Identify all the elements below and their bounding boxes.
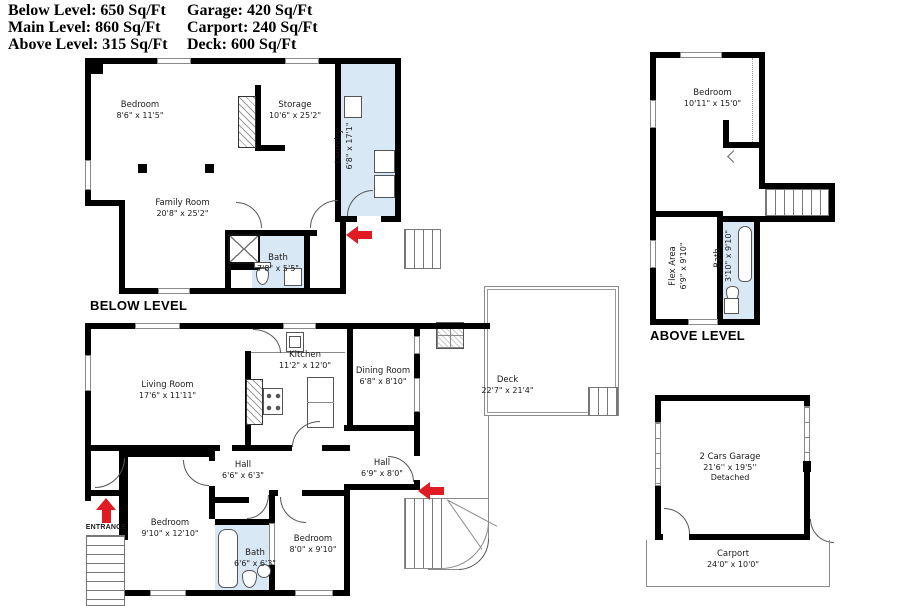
window (650, 240, 656, 268)
fridge (246, 379, 263, 425)
door-arc (236, 202, 262, 228)
wall-segment (414, 430, 420, 456)
wall-segment (754, 216, 760, 325)
wall-segment (302, 490, 350, 496)
window (158, 288, 190, 294)
wall-segment (269, 490, 278, 496)
side-door-arrow-left-icon (418, 482, 444, 500)
room-label-bath-below: Bath 7'8" x 5'5" (250, 253, 306, 274)
exterior-stairs (404, 229, 441, 269)
wall-segment (759, 52, 765, 189)
room-label-dining: Dining Room 6'8" x 8'10" (345, 366, 421, 387)
wall-segment (723, 216, 835, 222)
window (655, 422, 661, 486)
room-label-storage: Storage 10'6" x 25'2" (255, 100, 335, 121)
room-label-laundry: Laundry 6'8" x 17'1" (334, 121, 378, 171)
entrance-label: ENTRANCE (76, 524, 136, 531)
wall-segment (215, 519, 269, 525)
dryer (374, 175, 395, 198)
window (85, 160, 91, 190)
walkway-line (428, 569, 459, 570)
room-label-bedroom-left: Bedroom 9'10" x 12'10" (128, 518, 212, 539)
post (205, 164, 214, 173)
wall-segment (125, 451, 215, 457)
room-label-hall-left: Hall 6'6" x 6'3" (213, 460, 273, 481)
stove (263, 388, 283, 415)
wall-segment (255, 145, 285, 151)
window (688, 319, 718, 325)
wall-segment (85, 58, 401, 64)
window (680, 52, 722, 58)
entry-arrow-left-icon (346, 226, 372, 244)
door-arc (292, 421, 320, 447)
post (138, 164, 147, 173)
deck-stairs (588, 387, 618, 416)
room-label-bedroom-above: Bedroom 10'11" x 15'0" (665, 88, 760, 109)
summary-garage: Garage: 420 Sq/Ft (187, 2, 318, 19)
above-level-title: ABOVE LEVEL (650, 328, 745, 343)
wall-segment (723, 142, 759, 148)
window (295, 590, 333, 596)
wall-segment (215, 497, 249, 503)
wall-segment (119, 200, 125, 294)
window (157, 58, 191, 64)
window (804, 406, 810, 462)
carport-label: Carport 24'0" x 10'0" (683, 549, 783, 570)
post (803, 461, 811, 472)
wall-segment (344, 425, 420, 431)
room-label-deck: Deck 22'7" x 21'4" (465, 375, 550, 396)
door-arc (310, 200, 338, 228)
room-label-bath-above: Bath 3'10" x 9'10" (713, 234, 749, 282)
window (283, 323, 316, 329)
door-opening (663, 534, 689, 540)
carport-outline (646, 540, 647, 586)
wall-segment (322, 445, 350, 451)
garage-label: 2 Cars Garage 21'6'' x 19'5'' Detached (678, 452, 782, 484)
floor-plan-canvas: Below Level: 650 Sq/Ft Main Level: 860 S… (0, 0, 910, 606)
wall-segment (655, 395, 810, 401)
closet-door-chevron-icon (727, 150, 740, 163)
wall-segment (341, 216, 357, 222)
wall-segment (85, 323, 91, 501)
kitchen-sink-basin (289, 336, 301, 348)
window (85, 355, 91, 391)
room-label-kitchen: Kitchen 11'2" x 12'0" (265, 350, 345, 371)
summary-carport: Carport: 240 Sq/Ft (187, 19, 318, 36)
window (650, 100, 656, 128)
window (150, 590, 186, 596)
area-summary-right: Garage: 420 Sq/Ft Carport: 240 Sq/Ft Dec… (187, 2, 318, 53)
wall-segment (344, 484, 420, 490)
window (135, 323, 180, 329)
door-arc (810, 519, 834, 543)
wall-segment (91, 490, 128, 496)
window (414, 336, 420, 354)
below-level-title: BELOW LEVEL (90, 298, 187, 313)
area-summary-left: Below Level: 650 Sq/Ft Main Level: 860 S… (8, 2, 168, 53)
room-label-bedroom-mid: Bedroom 8'0" x 9'10" (275, 534, 351, 555)
summary-below: Below Level: 650 Sq/Ft (8, 2, 168, 19)
summary-above: Above Level: 315 Sq/Ft (8, 36, 168, 53)
kitchen-island-divider (307, 402, 334, 403)
wall-segment (650, 211, 723, 217)
wall-segment (232, 445, 292, 451)
carport-outline (646, 586, 830, 587)
window (285, 58, 319, 64)
door-arc (183, 460, 209, 486)
door-arc (247, 495, 269, 519)
room-label-bedroom-below: Bedroom 8'6" x 11'5" (100, 100, 180, 121)
wall-segment (381, 216, 401, 222)
room-label-hall-right: Hall 6'9" x 8'0" (352, 458, 412, 479)
door-arc (664, 508, 690, 534)
staircase (765, 189, 829, 216)
room-label-bath-main: Bath 6'6" x 6'3" (227, 548, 283, 569)
entrance-stairs (86, 535, 125, 606)
water-heater (344, 96, 362, 118)
summary-deck: Deck: 600 Sq/Ft (187, 36, 318, 53)
summary-main: Main Level: 860 Sq/Ft (8, 19, 168, 36)
entrance-arrow-up-icon (96, 498, 116, 523)
wall-segment (119, 288, 346, 294)
door-arc (280, 497, 306, 523)
room-label-flex: Flex Area 6'9" x 9'10" (668, 242, 708, 290)
wall-segment (650, 52, 656, 325)
room-label-family: Family Room 20'8" x 25'2" (140, 198, 225, 219)
room-label-living: Living Room 17'6" x 11'11" (125, 380, 210, 401)
wall-segment (395, 58, 401, 222)
sink (724, 298, 739, 314)
winder-stairs-treads (405, 499, 447, 568)
wall-segment (215, 590, 275, 596)
carport-outline (829, 540, 830, 586)
chimney (238, 96, 256, 148)
